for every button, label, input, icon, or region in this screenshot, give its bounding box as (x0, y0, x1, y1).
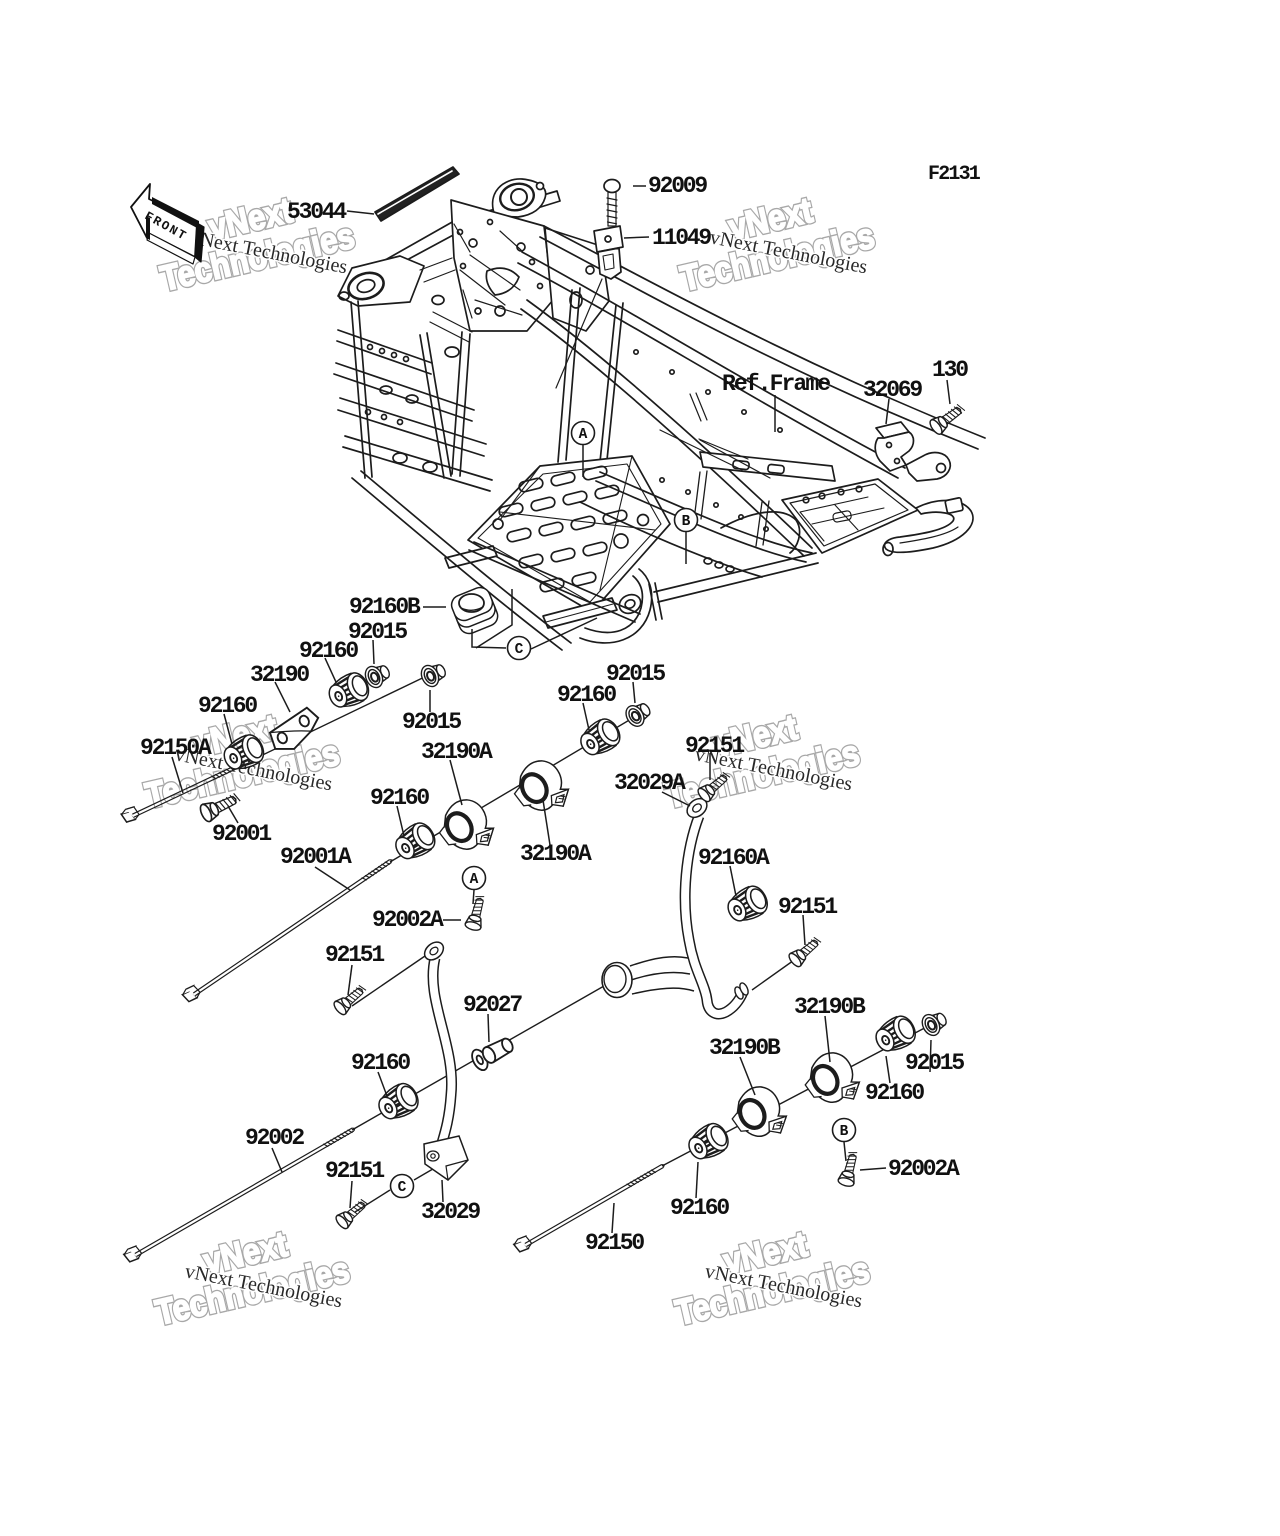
svg-text:92001: 92001 (212, 821, 271, 847)
svg-text:92151: 92151 (685, 733, 744, 759)
svg-text:92027: 92027 (463, 992, 522, 1018)
svg-text:C: C (398, 1180, 407, 1196)
svg-text:92002A: 92002A (372, 907, 444, 933)
svg-text:92160: 92160 (198, 693, 257, 719)
svg-text:32190: 32190 (250, 662, 309, 688)
svg-text:92015: 92015 (905, 1050, 964, 1076)
svg-text:32190A: 32190A (520, 841, 592, 867)
svg-text:92150: 92150 (585, 1230, 644, 1256)
svg-text:92009: 92009 (648, 173, 707, 199)
svg-text:32190B: 32190B (709, 1035, 781, 1061)
svg-text:32029: 32029 (421, 1199, 480, 1225)
svg-text:92160A: 92160A (698, 845, 770, 871)
svg-text:32190B: 32190B (794, 994, 866, 1020)
svg-text:C: C (515, 642, 524, 658)
svg-text:92151: 92151 (325, 942, 384, 968)
svg-text:53044: 53044 (287, 199, 347, 225)
svg-text:92160: 92160 (557, 682, 616, 708)
svg-text:32190A: 32190A (421, 739, 493, 765)
svg-text:92015: 92015 (402, 709, 461, 735)
svg-text:92160: 92160 (370, 785, 429, 811)
svg-text:92151: 92151 (778, 894, 837, 920)
svg-text:92160: 92160 (351, 1050, 410, 1076)
svg-text:B: B (840, 1124, 849, 1140)
svg-text:32029A: 32029A (614, 770, 686, 796)
svg-text:A: A (470, 872, 479, 888)
svg-text:A: A (579, 427, 588, 443)
svg-text:B: B (682, 514, 691, 530)
svg-text:92160: 92160 (865, 1080, 924, 1106)
svg-text:92160B: 92160B (349, 594, 421, 620)
svg-text:92002A: 92002A (888, 1156, 960, 1182)
svg-text:130: 130 (932, 357, 968, 383)
svg-text:92002: 92002 (245, 1125, 304, 1151)
svg-text:11049: 11049 (652, 225, 711, 251)
svg-text:92160: 92160 (670, 1195, 729, 1221)
svg-text:92160: 92160 (299, 638, 358, 664)
svg-text:92150A: 92150A (140, 735, 212, 761)
svg-text:Ref.Frame: Ref.Frame (722, 371, 830, 397)
svg-text:F2131: F2131 (928, 163, 981, 186)
svg-text:32069: 32069 (863, 377, 922, 403)
svg-text:92151: 92151 (325, 1158, 384, 1184)
svg-text:92001A: 92001A (280, 844, 352, 870)
